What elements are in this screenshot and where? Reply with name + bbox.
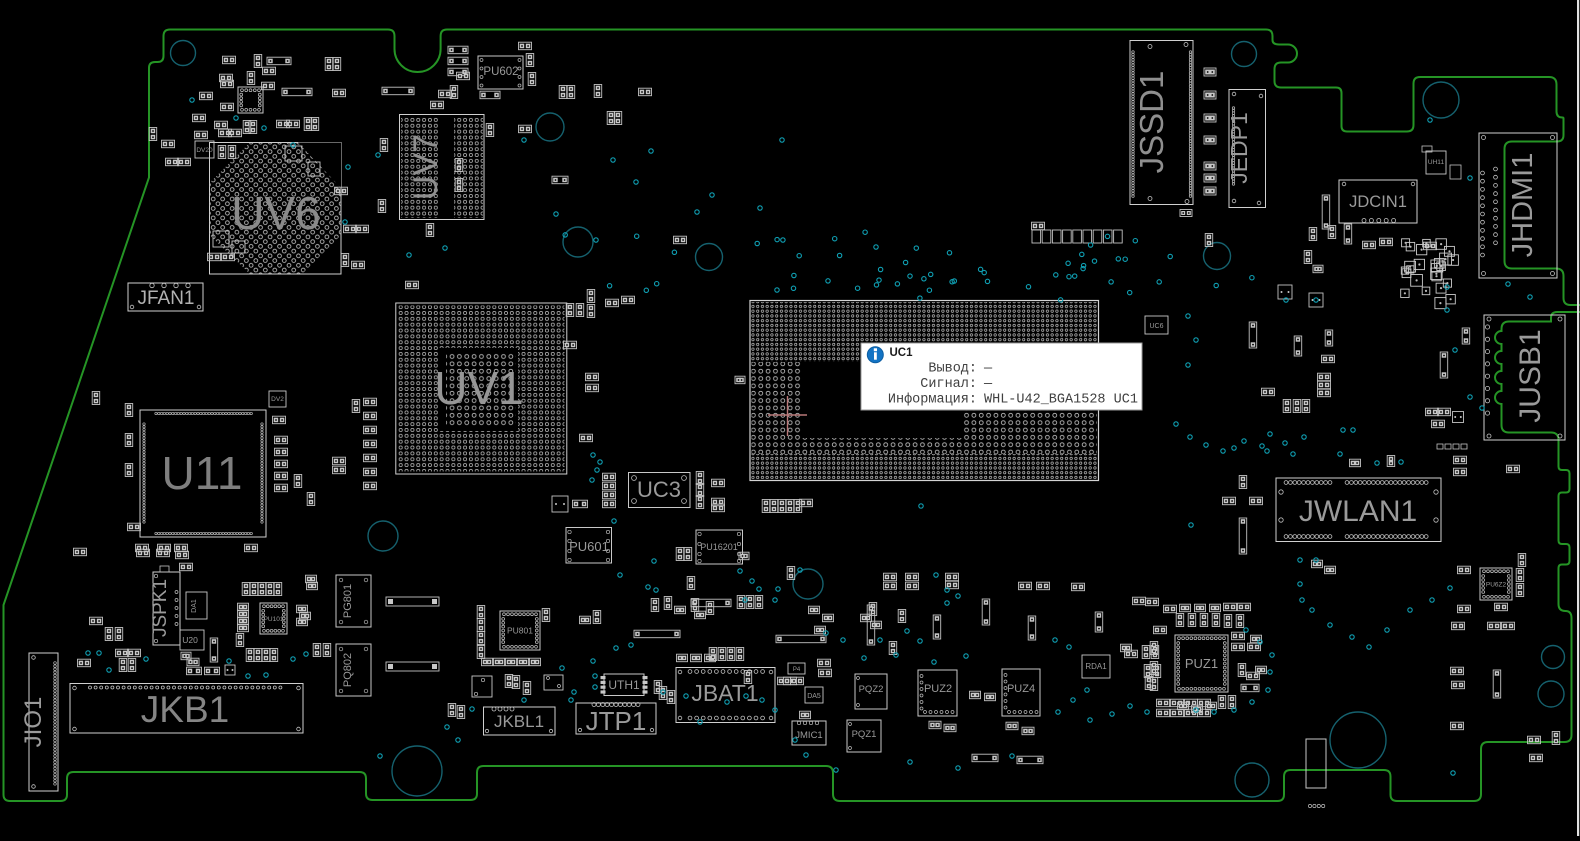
svg-text:UH11: UH11 xyxy=(1428,159,1445,166)
svg-text:UC1: UC1 xyxy=(890,347,914,359)
svg-text:PQZ1: PQZ1 xyxy=(852,729,877,740)
svg-text:DV20: DV20 xyxy=(196,147,213,154)
svg-text:PQ802: PQ802 xyxy=(342,653,354,687)
svg-text:UV1: UV1 xyxy=(434,362,523,414)
svg-text:UC6: UC6 xyxy=(1149,323,1163,330)
svg-text:PU16201: PU16201 xyxy=(700,542,738,552)
svg-text:UV7: UV7 xyxy=(407,134,445,200)
svg-text:PUZ4: PUZ4 xyxy=(1007,683,1035,695)
svg-text:JEDP1: JEDP1 xyxy=(1226,112,1252,184)
svg-text:JWLAN1: JWLAN1 xyxy=(1299,495,1417,528)
svg-text:JIO1: JIO1 xyxy=(20,697,47,748)
svg-text:PG801: PG801 xyxy=(342,584,354,618)
svg-text:JDCIN1: JDCIN1 xyxy=(1349,193,1407,211)
svg-text:JSSD1: JSSD1 xyxy=(1133,71,1170,174)
svg-text:Информация:: Информация: xyxy=(888,393,977,408)
svg-text:JHDMI1: JHDMI1 xyxy=(1507,153,1539,258)
svg-text:P4: P4 xyxy=(793,667,801,673)
svg-text:Сигнал:: Сигнал: xyxy=(920,377,977,392)
svg-text:PU801: PU801 xyxy=(507,626,533,636)
svg-text:U20: U20 xyxy=(182,635,198,645)
svg-text:JTP1: JTP1 xyxy=(586,706,647,736)
svg-text:JMIC1: JMIC1 xyxy=(795,730,822,741)
svg-text:UV6: UV6 xyxy=(231,187,320,239)
svg-text:—: — xyxy=(983,362,993,377)
svg-text:DA5: DA5 xyxy=(807,693,821,700)
svg-text:PU101: PU101 xyxy=(264,616,284,623)
svg-text:JFAN1: JFAN1 xyxy=(137,288,194,309)
svg-text:JKBL1: JKBL1 xyxy=(494,712,544,731)
svg-text:Вывод:: Вывод: xyxy=(928,362,977,377)
svg-text:UTH1: UTH1 xyxy=(608,678,640,692)
svg-text:PUZ2: PUZ2 xyxy=(924,683,952,695)
svg-text:RDA1: RDA1 xyxy=(1085,662,1107,671)
svg-text:PUZ1: PUZ1 xyxy=(1185,656,1218,671)
svg-text:JUSB1: JUSB1 xyxy=(1514,329,1547,422)
svg-text:WHL-U42_BGA1528 UC1: WHL-U42_BGA1528 UC1 xyxy=(984,393,1138,408)
svg-text:UC3: UC3 xyxy=(637,477,681,502)
svg-text:—: — xyxy=(983,377,993,392)
svg-text:U11: U11 xyxy=(162,447,243,499)
svg-text:PU601: PU601 xyxy=(569,539,609,554)
svg-text:DA1: DA1 xyxy=(191,599,198,613)
svg-text:PU602: PU602 xyxy=(483,66,518,78)
svg-text:JKB1: JKB1 xyxy=(141,689,229,730)
svg-text:PQZ2: PQZ2 xyxy=(859,684,884,695)
svg-text:JSPK1: JSPK1 xyxy=(150,579,171,637)
svg-text:PU6Z2: PU6Z2 xyxy=(1486,581,1507,588)
svg-text:DV2: DV2 xyxy=(271,396,284,403)
